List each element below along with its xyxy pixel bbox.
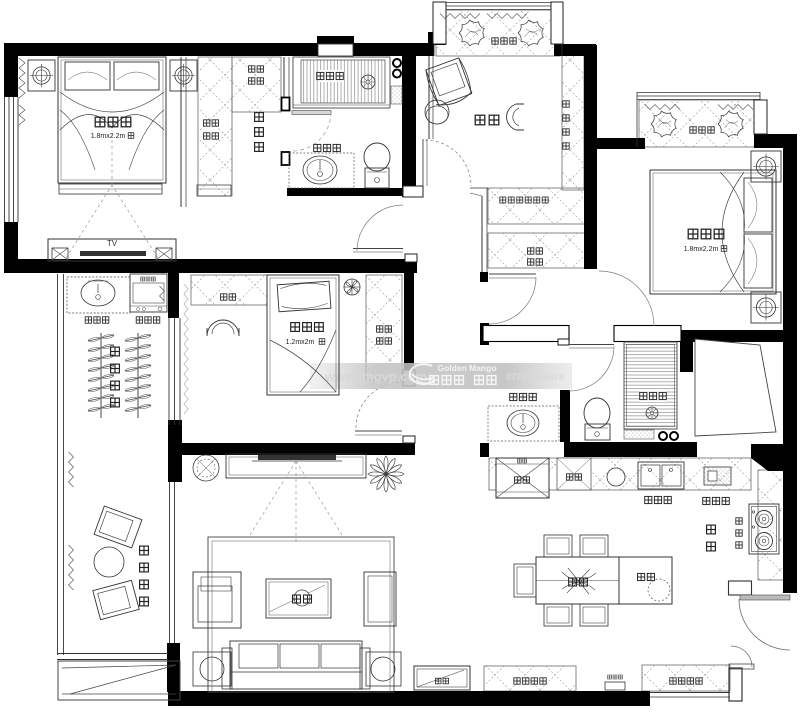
svg-text:1.8mx2.2m: 1.8mx2.2m <box>91 133 126 140</box>
svg-text:Golden Mango: Golden Mango <box>437 363 496 373</box>
svg-text:0771-2345678: 0771-2345678 <box>506 372 564 382</box>
svg-text:1.2mx2m: 1.2mx2m <box>286 339 315 346</box>
svg-text:1.8mx2.2m: 1.8mx2.2m <box>684 246 719 253</box>
svg-text:TV: TV <box>107 239 118 248</box>
